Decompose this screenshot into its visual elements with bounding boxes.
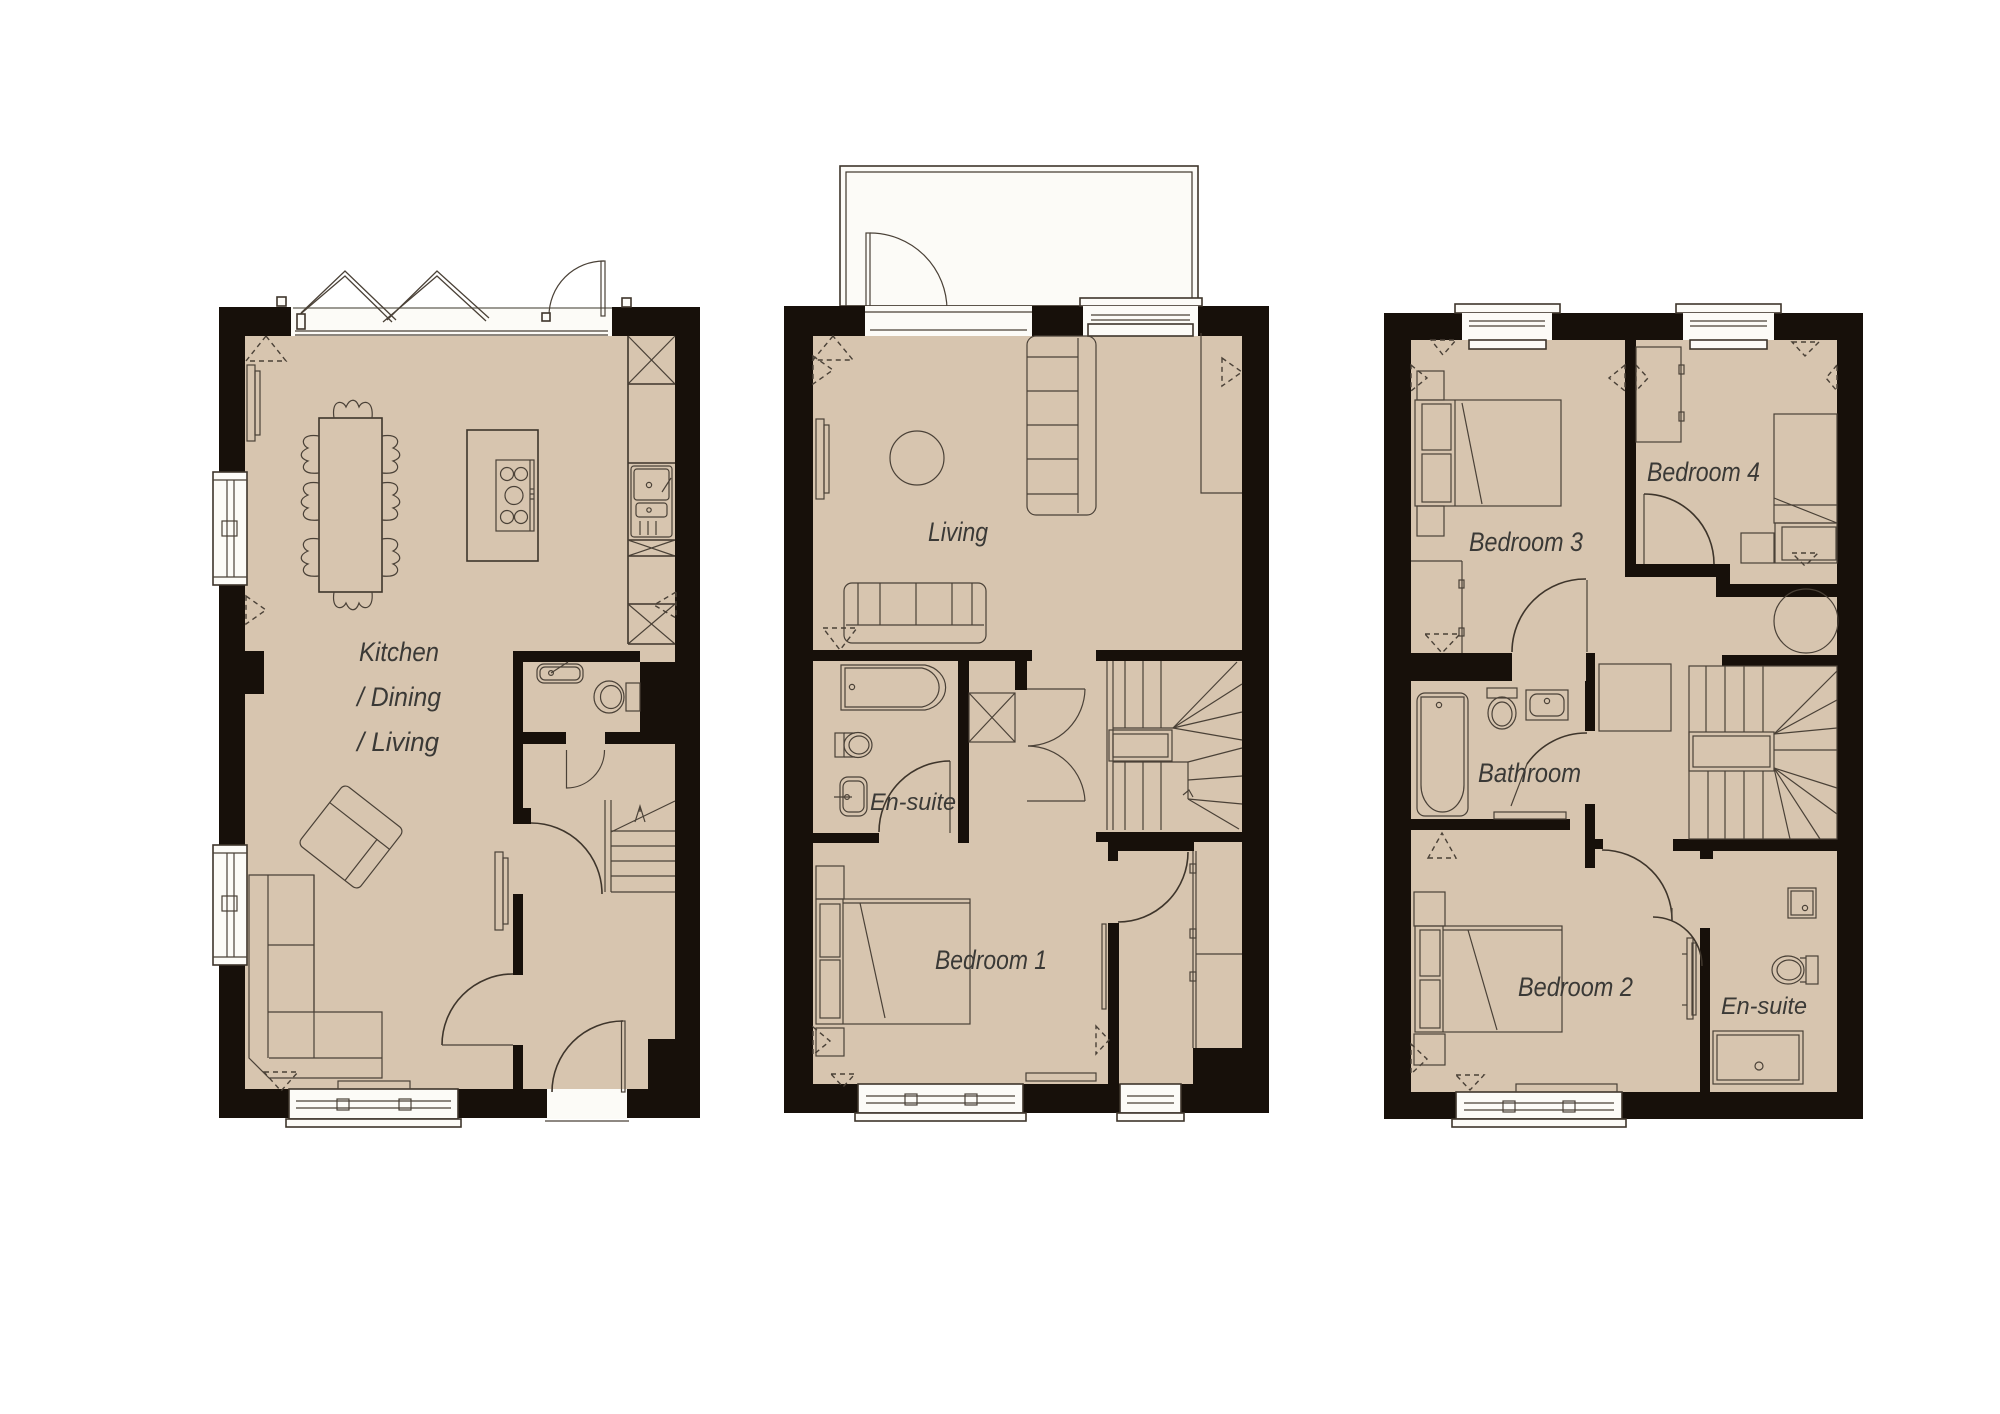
svg-text:Bedroom 2: Bedroom 2: [1518, 972, 1633, 1002]
svg-text:En-suite: En-suite: [1721, 993, 1807, 1020]
svg-text:Living: Living: [928, 517, 988, 547]
svg-text:En-suite: En-suite: [870, 789, 956, 816]
svg-text:Bedroom 1: Bedroom 1: [935, 945, 1047, 975]
svg-text:/ Dining: / Dining: [355, 682, 441, 712]
svg-text:Bedroom 4: Bedroom 4: [1647, 457, 1760, 487]
svg-text:/ Living: / Living: [355, 727, 439, 757]
svg-text:Bathroom: Bathroom: [1478, 758, 1581, 788]
svg-text:Bedroom 3: Bedroom 3: [1469, 527, 1583, 557]
svg-text:Kitchen: Kitchen: [359, 637, 439, 667]
